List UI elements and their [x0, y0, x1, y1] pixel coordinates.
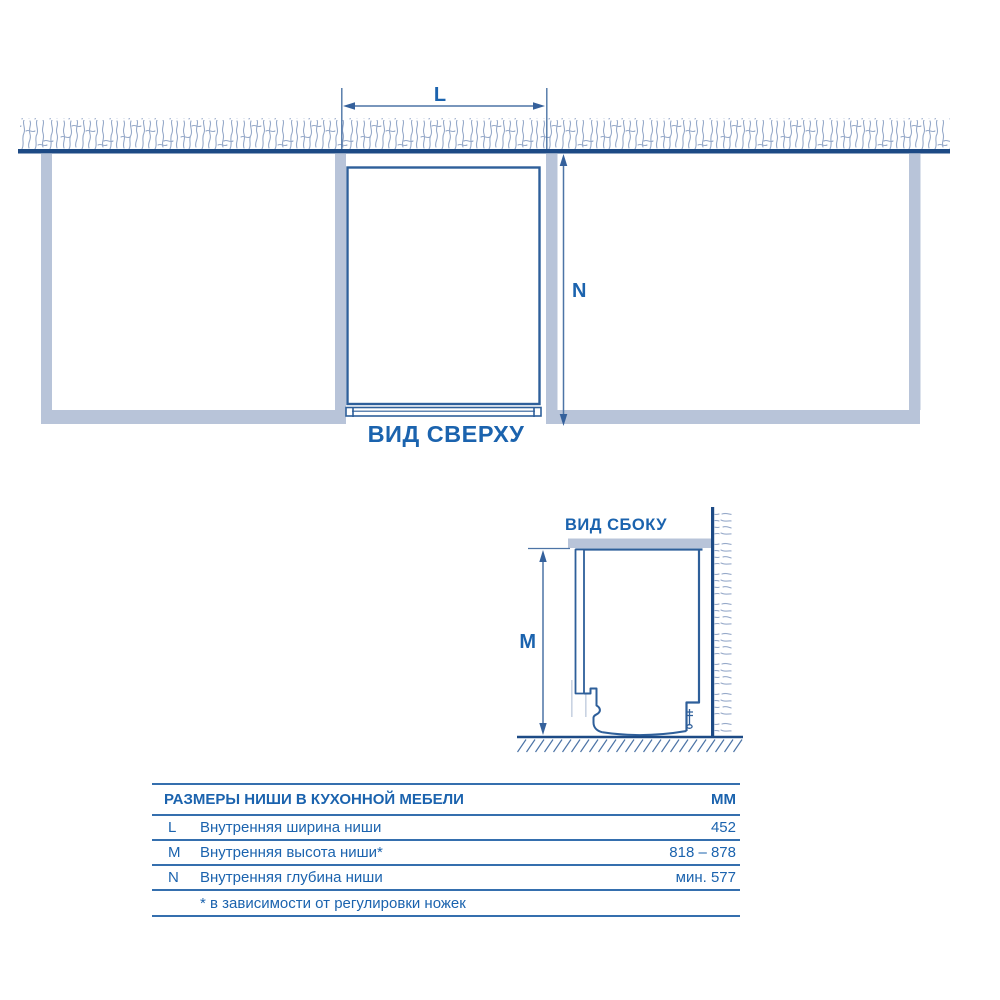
- table-row: M Внутренняя высота ниши* 818 – 878: [152, 841, 740, 866]
- appliance-side-profile: [572, 550, 703, 735]
- arrow-left-icon: [343, 102, 355, 110]
- niche-dimensions-table: РАЗМЕРЫ НИШИ В КУХОННОЙ МЕБЕЛИ ММ L Внут…: [152, 783, 740, 917]
- rear-wall-line: [711, 507, 714, 738]
- niche-left-wall: [335, 154, 346, 424]
- table-title: РАЗМЕРЫ НИШИ В КУХОННОЙ МЕБЕЛИ: [164, 791, 464, 808]
- row-description: Внутренняя ширина ниши: [200, 819, 711, 836]
- wall-hatch-band: [20, 118, 950, 149]
- appliance-back-edge: [687, 550, 700, 732]
- row-key: M: [168, 844, 200, 861]
- floor-hatch: [518, 740, 743, 753]
- table-row: L Внутренняя ширина ниши 452: [152, 816, 740, 841]
- side-view: ВИД СБОКУ: [517, 507, 743, 752]
- appliance-bottom-line: [603, 731, 687, 735]
- counter-right-side-panel: [909, 154, 921, 410]
- counter-left-side-panel: [41, 154, 52, 410]
- arrow-right-icon: [533, 102, 545, 110]
- dimension-L-label: L: [434, 84, 446, 106]
- side-view-title: ВИД СБОКУ: [565, 516, 667, 534]
- installation-manual-page: L N ВИД СВЕРХУ ВИД СБОКУ: [0, 0, 1000, 1000]
- table-footnote: * в зависимости от регулировки ножек: [152, 891, 740, 917]
- row-description: Внутренняя высота ниши*: [200, 844, 669, 861]
- footnote-text: * в зависимости от регулировки ножек: [200, 895, 466, 912]
- row-value: 452: [711, 819, 736, 836]
- countertop-panel: [568, 539, 711, 549]
- appliance-door-side: [576, 550, 585, 694]
- appliance-door-top: [346, 408, 541, 418]
- top-view: L N ВИД СВЕРХУ: [18, 84, 950, 447]
- niche-right-wall: [546, 154, 558, 424]
- wall-line: [18, 149, 950, 154]
- appliance-body-top: [348, 168, 540, 405]
- table-row: N Внутренняя глубина ниши мин. 577: [152, 866, 740, 891]
- table-header-row: РАЗМЕРЫ НИШИ В КУХОННОЙ МЕБЕЛИ ММ: [152, 783, 740, 816]
- dimension-N-label: N: [572, 280, 586, 302]
- top-view-title: ВИД СВЕРХУ: [368, 421, 525, 447]
- arrow-up-icon: [560, 154, 568, 166]
- dimension-N: N: [560, 154, 587, 426]
- front-foot-profile: [584, 689, 603, 733]
- row-key: N: [168, 869, 200, 886]
- row-key: L: [168, 819, 200, 836]
- table-unit-header: ММ: [711, 791, 736, 808]
- row-value: 818 – 878: [669, 844, 736, 861]
- dimension-M-label: M: [519, 631, 536, 653]
- rear-wall-hatch: [715, 509, 732, 737]
- arrow-down-icon: [539, 723, 546, 735]
- counter-left-front-panel: [41, 410, 335, 424]
- row-description: Внутренняя глубина ниши: [200, 869, 676, 886]
- counter-right-front-panel: [546, 410, 920, 424]
- arrow-up-icon: [539, 550, 546, 562]
- dimension-M: M: [519, 549, 570, 736]
- row-value: мин. 577: [676, 869, 736, 886]
